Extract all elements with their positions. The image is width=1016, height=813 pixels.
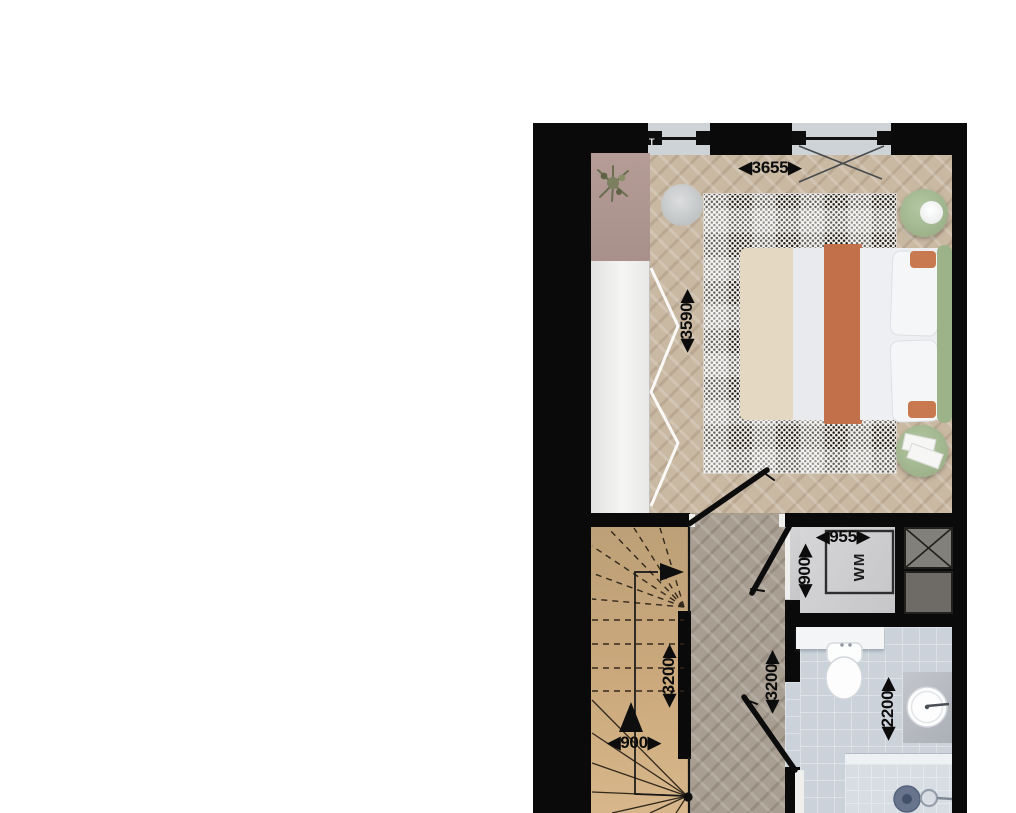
dim-stair-width: ◀900▶	[594, 732, 674, 754]
toilet	[826, 643, 862, 699]
flush-button-icon	[840, 643, 843, 646]
plant-icon	[598, 166, 628, 201]
walk-start-dot-icon	[683, 792, 692, 801]
dim-bedroom-width: ◀3655▶	[715, 157, 825, 179]
dim-stair-run: ◀3200▶	[658, 626, 680, 726]
dim-bedroom-depth: ◀3590▶	[676, 266, 698, 376]
dim-wm-depth: ◀900▶	[794, 531, 816, 611]
wash-basin	[907, 687, 949, 727]
washing-machine-label: WM	[849, 542, 871, 592]
bedroom-door-leaf	[689, 470, 767, 524]
door-handle-icon	[763, 472, 774, 480]
linework-overlay	[0, 0, 1016, 813]
floor-plan-canvas: T	[0, 0, 1016, 813]
stair-walk-line	[619, 563, 693, 802]
shower-fittings	[894, 786, 952, 812]
wm-door-leaf	[752, 527, 789, 593]
dim-hall-run: ◀3200▶	[761, 632, 783, 732]
flush-button-icon	[848, 643, 851, 646]
shower-mixer-icon	[921, 790, 937, 806]
duct-linework	[905, 528, 952, 613]
dim-bathroom-depth: ◀2200▶	[877, 659, 899, 759]
walk-direction-arrow-icon	[660, 563, 684, 581]
wardrobe-door-marks	[651, 268, 678, 506]
stair-up-arrow-icon	[619, 702, 643, 732]
